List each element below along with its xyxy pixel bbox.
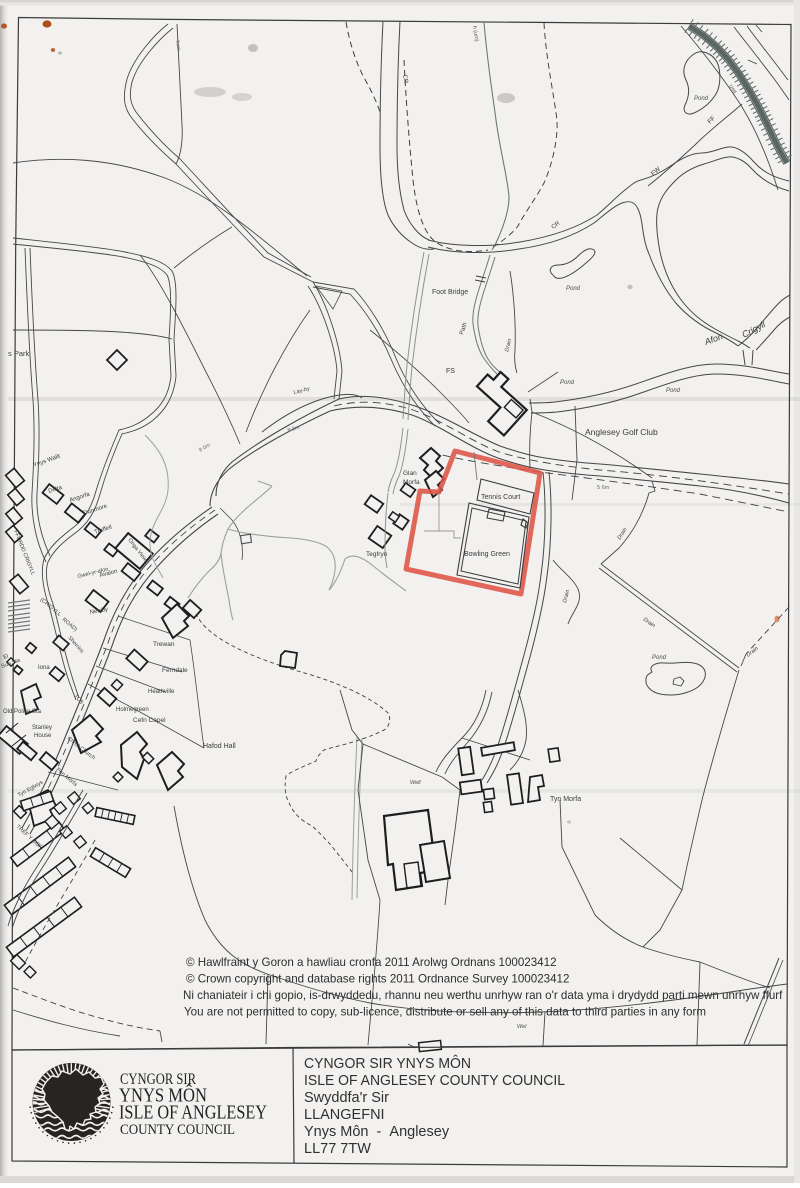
svg-text:Pond: Pond <box>652 655 667 661</box>
svg-text:Pond: Pond <box>666 388 681 394</box>
svg-text:CYNGOR SIR YNYS MÔN: CYNGOR SIR YNYS MÔN <box>304 1055 471 1072</box>
svg-text:Tegfryn: Tegfryn <box>366 551 388 558</box>
svg-text:Well: Well <box>410 780 421 786</box>
svg-text:ISLE OF ANGLESEY COUNTY COUNCI: ISLE OF ANGLESEY COUNTY COUNCIL <box>304 1073 565 1089</box>
svg-text:FS: FS <box>446 368 455 375</box>
svg-text:You are not permitted to copy,: You are not permitted to copy, sub-licen… <box>184 1006 706 1019</box>
svg-text:Pond: Pond <box>566 286 581 292</box>
svg-text:Pond: Pond <box>560 380 575 386</box>
svg-text:Foot Bridge: Foot Bridge <box>432 289 468 296</box>
svg-text:LL77 7TW: LL77 7TW <box>304 1141 371 1157</box>
svg-text:COUNTY COUNCIL: COUNTY COUNCIL <box>120 1121 235 1138</box>
svg-text:Old Police Sta: Old Police Sta <box>3 709 42 715</box>
svg-text:Pond: Pond <box>694 96 709 102</box>
svg-text:Wel: Wel <box>517 1024 527 1030</box>
svg-text:Cefn Capel: Cefn Capel <box>133 717 166 724</box>
svg-text:© Hawlfraint y Goron a hawliau: © Hawlfraint y Goron a hawliau cronfa 20… <box>186 956 557 969</box>
svg-text:5 6m: 5 6m <box>597 485 610 491</box>
svg-text:Heathville: Heathville <box>148 689 175 695</box>
svg-text:Trewan: Trewan <box>153 641 175 648</box>
svg-text:Bowling Green: Bowling Green <box>464 551 510 558</box>
svg-text:Swyddfa'r Sir: Swyddfa'r Sir <box>304 1090 389 1106</box>
svg-text:Tennis Court: Tennis Court <box>481 494 520 501</box>
svg-text:© Crown copyright and database: © Crown copyright and database rights 20… <box>186 973 569 986</box>
svg-text:Anglesey Golf Club: Anglesey Golf Club <box>585 427 658 437</box>
svg-text:Holmegreen: Holmegreen <box>116 707 149 713</box>
svg-text:Ynys Môn - Anglesey: Ynys Môn - Anglesey <box>304 1124 450 1140</box>
svg-text:Tyn Morfa: Tyn Morfa <box>550 796 581 803</box>
svg-text:House: House <box>34 733 52 739</box>
svg-text:Stanley: Stanley <box>32 725 52 731</box>
svg-text:Ferndale: Ferndale <box>162 667 188 674</box>
svg-text:Ni chaniateir i chi gopio, is-: Ni chaniateir i chi gopio, is-drwyddedu,… <box>183 989 783 1002</box>
svg-text:Morfa: Morfa <box>403 479 420 486</box>
svg-text:Hafod Hall: Hafod Hall <box>203 743 236 750</box>
svg-text:LLANGEFNI: LLANGEFNI <box>304 1107 385 1123</box>
svg-text:Iona: Iona <box>38 665 50 671</box>
svg-text:s Park: s Park <box>8 349 30 358</box>
svg-text:Glan: Glan <box>403 470 417 477</box>
